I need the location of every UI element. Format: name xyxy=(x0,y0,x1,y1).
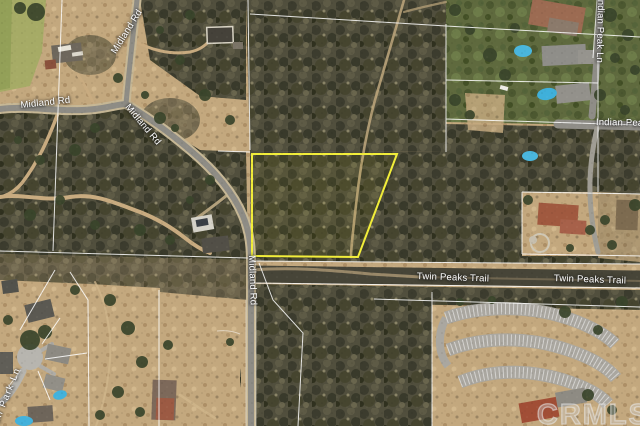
grain-overlay xyxy=(0,0,640,426)
satellite-map[interactable]: Midland Rd Midland Rd Midland Rd Midland… xyxy=(0,0,640,426)
terrain-layer xyxy=(0,0,640,426)
